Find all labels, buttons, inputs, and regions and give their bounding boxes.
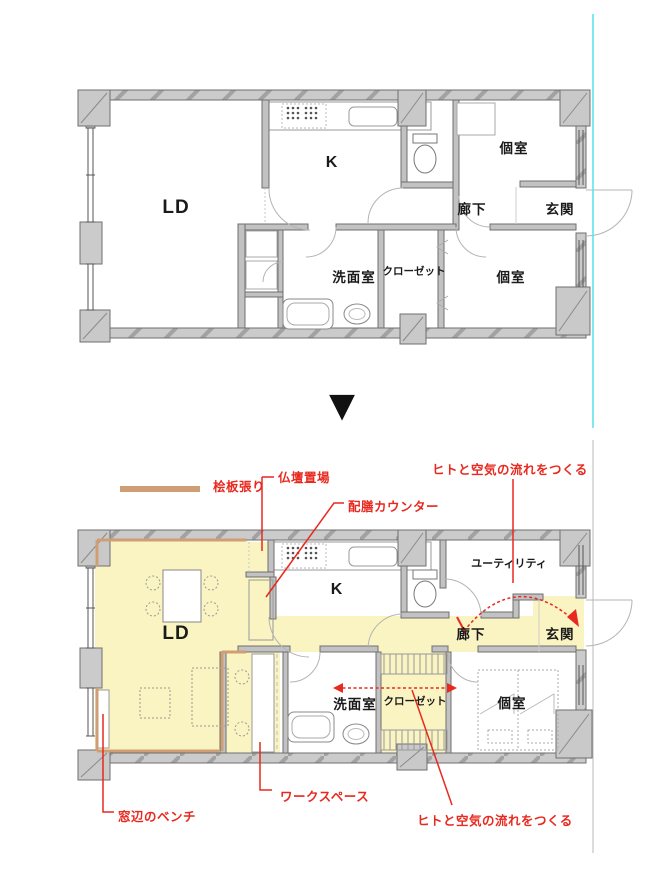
room-label-utility-after: ユーティリティ <box>471 555 547 571</box>
room-label-closet-before: クローゼット <box>383 264 446 279</box>
room-label-ld-after: LD <box>162 623 189 645</box>
annotation-workspace: ワークスペース <box>280 786 369 805</box>
floorplan-page: ▼ 桧板張り LD K 個室 廊下 玄関 洗面室 クローゼット 個室 LD K … <box>0 0 667 881</box>
room-label-washroom-after: 洗面室 <box>333 693 377 713</box>
annotation-flow-bottom: ヒトと空気の流れをつくる <box>417 810 573 829</box>
transition-arrow: ▼ <box>320 384 364 428</box>
plan-after <box>78 477 632 812</box>
room-label-corridor-before: 廊下 <box>458 198 487 218</box>
annotation-altar: 仏壇置場 <box>278 467 330 486</box>
room-label-bedroom-top-before: 個室 <box>500 137 529 157</box>
legend-swatch-hinoki <box>120 486 200 492</box>
interior-walls-before <box>238 100 576 328</box>
room-label-kitchen-after: K <box>331 581 344 599</box>
room-label-kitchen-before: K <box>326 154 339 172</box>
room-label-washroom-before: 洗面室 <box>332 266 376 286</box>
room-label-corridor-after: 廊下 <box>457 623 486 643</box>
annotation-flow-top: ヒトと空気の流れをつくる <box>432 459 588 478</box>
room-label-entrance-before: 玄関 <box>546 198 575 218</box>
room-label-bedroom-bottom-before: 個室 <box>497 266 526 286</box>
room-label-bedroom-after: 個室 <box>498 692 527 712</box>
annotation-serving-counter: 配膳カウンター <box>348 496 439 515</box>
room-label-ld-before: LD <box>162 197 189 219</box>
annotation-window-bench: 窓辺のベンチ <box>118 806 196 825</box>
floorplan-drawing <box>0 0 667 881</box>
room-label-closet-after: クローゼット <box>384 694 447 709</box>
legend-label-hinoki: 桧板張り <box>213 476 265 495</box>
room-label-entrance-after: 玄関 <box>546 623 575 643</box>
